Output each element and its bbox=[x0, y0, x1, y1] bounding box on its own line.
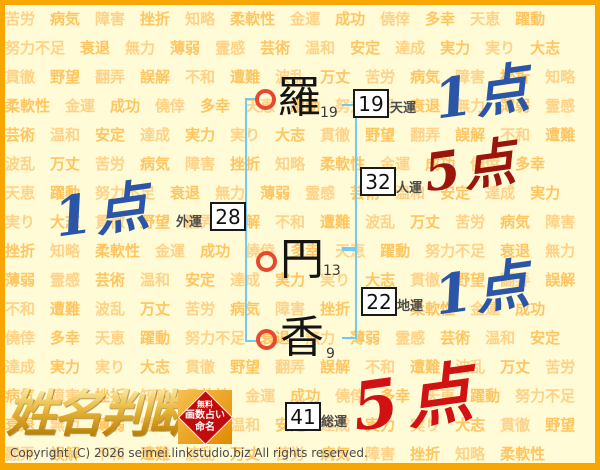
free-kanji-fortune-badge: 無料 画数占い 命名 bbox=[178, 390, 232, 444]
stroke-count-2: 13 bbox=[323, 263, 341, 279]
gaiun-bracket bbox=[245, 98, 259, 342]
jinun-score: 5点 bbox=[421, 136, 522, 201]
char-marker-circle bbox=[256, 251, 277, 272]
souun-score: 5点 bbox=[348, 357, 484, 440]
badge-line-free: 無料 bbox=[197, 400, 213, 410]
seimei-handan-result-page: 苦労病気障害挫折知略柔軟性金運成功僥倖多幸天恵躍動努力不足衰退無力薄弱霊感芸術温… bbox=[0, 0, 600, 470]
gaiun-label: 外運 bbox=[176, 211, 202, 230]
stroke-count-3: 9 bbox=[326, 346, 335, 362]
chiun-score: 1点 bbox=[431, 255, 535, 322]
site-logo[interactable]: 姓名判断 bbox=[6, 386, 194, 441]
jinun-value-box: 32 bbox=[360, 167, 396, 196]
name-char-3: 香 bbox=[280, 316, 324, 360]
char-marker-circle bbox=[255, 89, 276, 110]
copyright-text: Copyright (C) 2026 seimei.linkstudio.biz… bbox=[10, 446, 368, 460]
stroke-count-1: 19 bbox=[320, 105, 338, 121]
tenun-label: 天運 bbox=[390, 97, 416, 116]
tenun-value-box: 19 bbox=[353, 89, 389, 118]
badge-line-kakusu: 画数占い bbox=[185, 410, 225, 422]
chiun-bracket bbox=[342, 249, 357, 339]
gaiun-value-box: 28 bbox=[210, 202, 246, 231]
souun-label: 総運 bbox=[321, 411, 347, 430]
tenun-score: 1点 bbox=[431, 59, 535, 126]
souun-value-box: 41 bbox=[285, 402, 321, 431]
jinun-label: 人運 bbox=[396, 177, 422, 196]
badge-text: 無料 画数占い 命名 bbox=[178, 390, 232, 444]
gaiun-score: 1点 bbox=[51, 177, 155, 244]
name-char-2: 円 bbox=[280, 238, 324, 282]
badge-line-meimei: 命名 bbox=[195, 422, 215, 434]
chiun-label: 地運 bbox=[397, 295, 423, 314]
char-marker-circle bbox=[256, 329, 277, 350]
name-char-1: 羅 bbox=[277, 76, 321, 120]
chiun-value-box: 22 bbox=[361, 287, 397, 316]
jinun-bracket bbox=[342, 104, 357, 249]
